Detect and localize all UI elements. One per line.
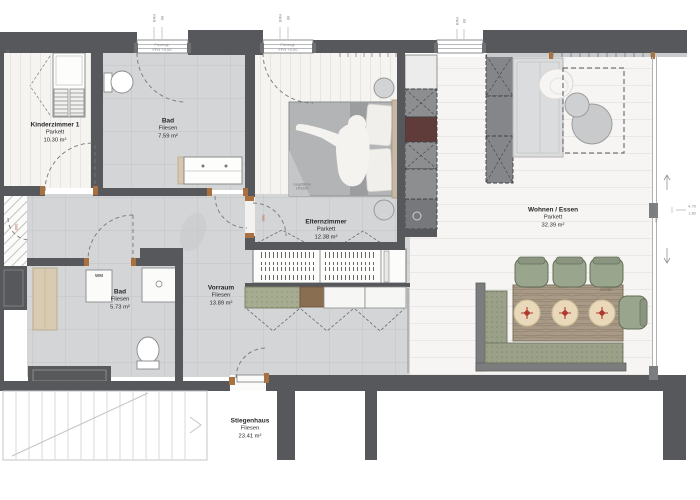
person-figure-body xyxy=(336,123,370,186)
nightstand-top xyxy=(374,78,394,98)
toilet-bad-top xyxy=(104,71,133,93)
floor-plan-drawing xyxy=(0,0,700,500)
toilet-bad-bottom xyxy=(137,337,159,363)
nightstand-bottom xyxy=(374,200,394,220)
wall-top-right-bar xyxy=(483,30,687,53)
shaft-niche xyxy=(4,196,27,266)
pillar xyxy=(663,391,686,460)
pillar xyxy=(277,391,295,460)
bed-elternzimmer xyxy=(289,100,400,198)
window-kinderbad xyxy=(134,40,191,53)
person-figure-head xyxy=(348,115,366,133)
washing-machine xyxy=(86,270,112,302)
staircase xyxy=(3,391,207,460)
vanity-bad-top xyxy=(178,157,242,184)
oven xyxy=(405,117,437,142)
plant-small xyxy=(565,93,589,117)
entrance-door-leaf xyxy=(237,375,265,382)
corner-bench-bottom xyxy=(485,343,623,363)
window-elternzimmer xyxy=(260,40,316,53)
place-settings xyxy=(514,300,615,326)
floor-plan: Kinderzimmer 1 Parkett 10.30 m² Bad Flie… xyxy=(0,0,700,500)
glass-wall-right xyxy=(649,57,670,380)
pillar xyxy=(365,391,377,460)
bath-sink xyxy=(142,268,177,302)
window-kitchen xyxy=(434,40,486,53)
